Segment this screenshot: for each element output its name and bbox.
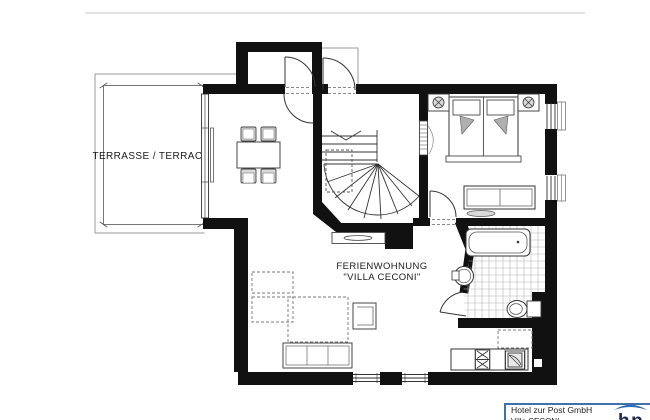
bedroom-door xyxy=(430,191,456,225)
walls xyxy=(203,42,557,385)
upper-cabinet-dashed xyxy=(498,330,532,348)
dashed-furniture-outlines xyxy=(252,272,348,342)
dining-table-icon xyxy=(237,142,280,168)
nightstand-lamp-icon xyxy=(428,94,449,111)
chair-icon xyxy=(261,127,276,141)
door-swing-icon xyxy=(285,57,315,87)
double-bed-icon xyxy=(446,97,521,162)
rug-icon xyxy=(467,211,495,217)
bathroom xyxy=(440,226,545,318)
washbasin-icon xyxy=(452,267,474,286)
bedroom xyxy=(420,94,566,225)
winder-treads xyxy=(324,164,419,219)
apartment-label-line1: FERIENWOHNUNG xyxy=(336,261,427,272)
logo-letters: hp xyxy=(618,411,644,420)
title-block-company: Hotel zur Post GmbH xyxy=(511,405,592,415)
floor-plan-page: TERRASSE / TERRACE xyxy=(0,0,650,420)
door-swing-icon xyxy=(430,191,456,217)
window-icon xyxy=(547,175,566,201)
radiator-icon xyxy=(420,121,434,155)
apartment-label-line2: "VILLA CECONI" xyxy=(343,272,420,283)
chair-icon xyxy=(241,169,256,183)
toilet-icon xyxy=(507,301,541,318)
nightstand-lamp-icon xyxy=(518,94,539,111)
window-icon xyxy=(353,373,380,383)
chair-icon xyxy=(241,127,256,141)
sofa-icon xyxy=(283,343,352,368)
dining-area xyxy=(237,127,280,183)
stove-icon xyxy=(506,351,525,369)
bathroom-door xyxy=(440,292,466,316)
terrace: TERRASSE / TERRACE xyxy=(92,74,238,233)
sideboard-icon xyxy=(332,233,385,244)
armchair-icon xyxy=(353,303,376,329)
door-swing-icon xyxy=(440,292,463,312)
living-area xyxy=(252,272,376,368)
window-icon xyxy=(402,373,428,383)
apartment-label: FERIENWOHNUNG "VILLA CECONI" xyxy=(336,261,427,283)
terrace-label: TERRASSE / TERRACE xyxy=(92,151,209,162)
sliding-door-icon xyxy=(202,94,214,218)
chair-icon xyxy=(261,169,276,183)
window-icon xyxy=(547,102,566,130)
title-block: Hotel zur Post GmbH Villa CECONI hp xyxy=(504,403,650,420)
floor-plan-drawing: TERRASSE / TERRACE xyxy=(0,0,650,420)
kitchen xyxy=(451,330,532,370)
bathtub-icon xyxy=(466,229,530,256)
door-swing-icon xyxy=(284,94,313,123)
stairs-icon xyxy=(322,130,419,219)
bench-icon xyxy=(464,186,535,209)
